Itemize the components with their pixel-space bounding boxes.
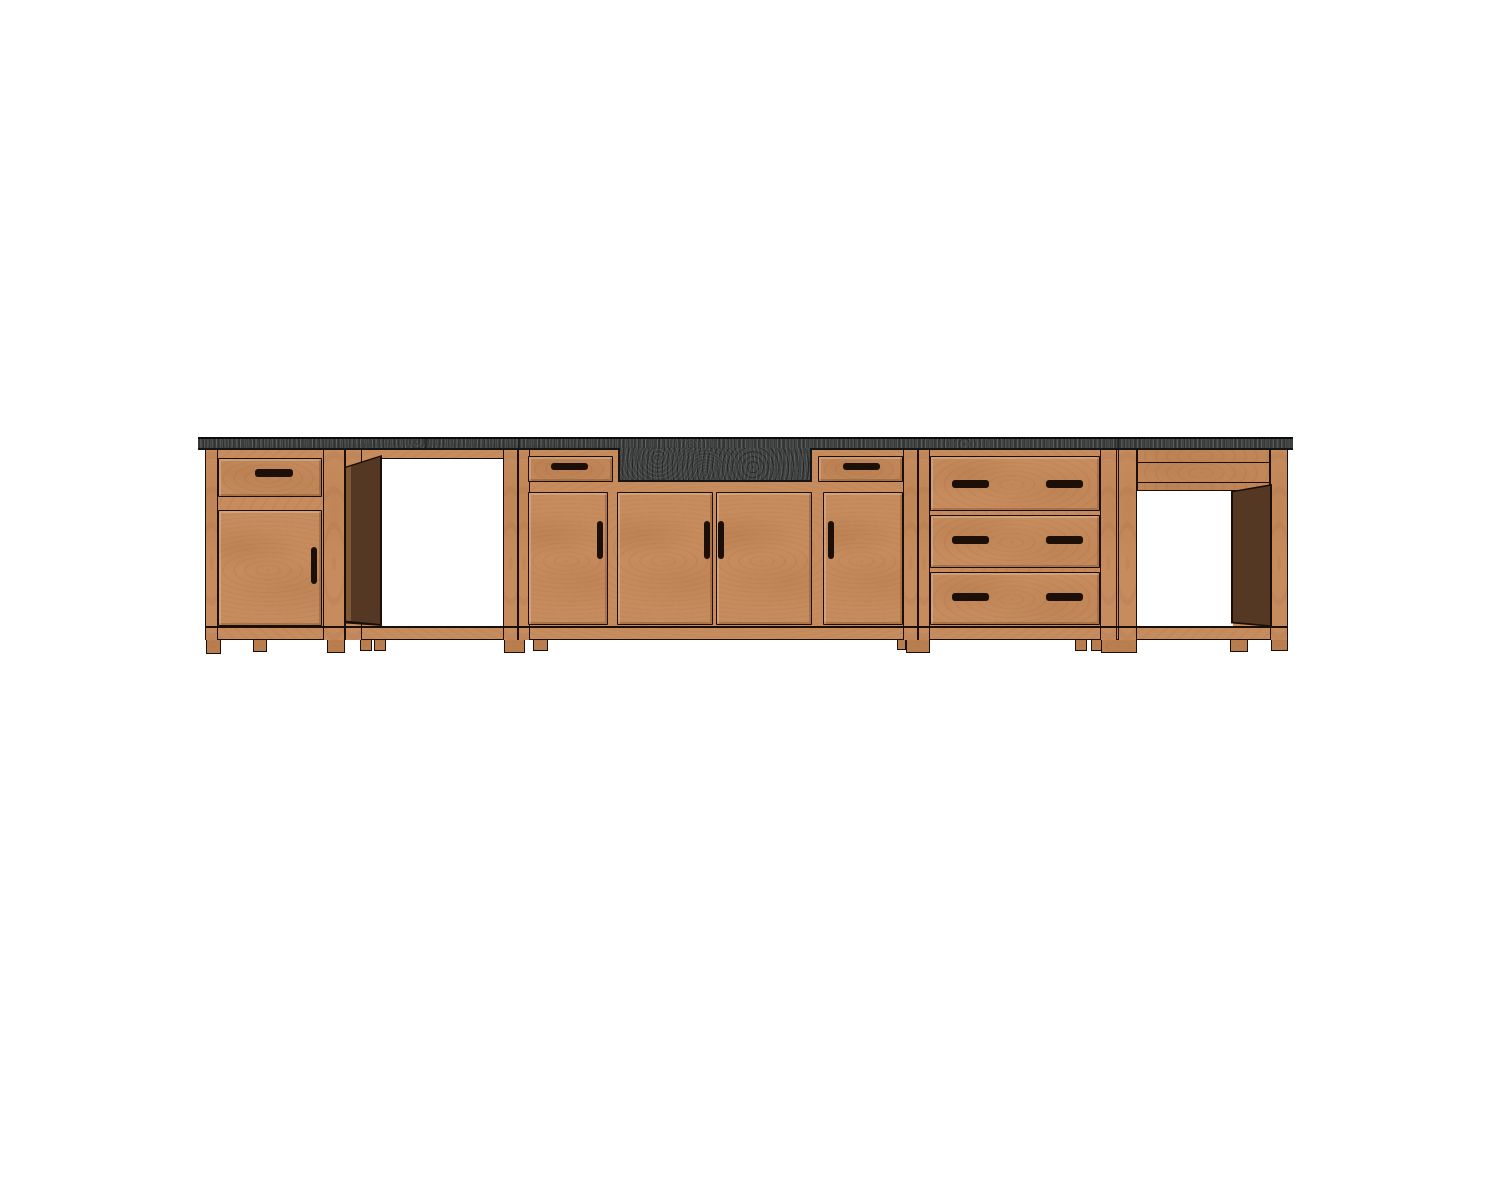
- unit4-drawer2-handle-left: [952, 536, 989, 544]
- stile-unit1-right: [323, 449, 345, 640]
- unit3-drawer-left-handle: [551, 463, 588, 470]
- unit4-drawer1-handle-right: [1046, 480, 1083, 488]
- farmhouse-sink-apron: [618, 448, 812, 482]
- unit5-appliance-opening: [1137, 490, 1233, 627]
- unit4-drawer3-handle-right: [1046, 593, 1083, 601]
- unit5-top-rail: [1137, 449, 1270, 463]
- unit2-foot-a: [360, 640, 372, 651]
- unit5-foot: [1230, 640, 1248, 652]
- unit3-door-left: [528, 492, 608, 625]
- unit4-foot-a: [1075, 640, 1087, 651]
- unit3-drawer-right-handle: [843, 463, 880, 470]
- unit1-door-handle: [311, 547, 317, 584]
- stile-unit4-left: [918, 449, 930, 640]
- unit1-door: [218, 510, 322, 626]
- unit5-interior-side-panel: [1233, 486, 1270, 626]
- unit1-left-leg: [206, 640, 221, 654]
- unit3-door-center-right-handle: [718, 521, 724, 559]
- stile-unit5-right: [1270, 449, 1288, 640]
- unit4-right-leg: [1101, 640, 1137, 653]
- unit1-center-foot: [253, 640, 267, 652]
- unit3-door-right-handle: [828, 521, 834, 559]
- unit5-second-rail: [1137, 462, 1270, 483]
- bottom-rail-top-edge: [205, 626, 1288, 628]
- unit1-right-leg: [327, 640, 345, 653]
- unit2-foot-b: [374, 640, 386, 651]
- unit3-right-foot: [897, 640, 906, 650]
- stile-unit3-right: [903, 449, 918, 640]
- unit2-open-door: [346, 457, 380, 624]
- unit4-drawer2-handle-right: [1046, 536, 1083, 544]
- countertop-seam-2: [518, 439, 520, 448]
- unit3-door-center-right: [716, 492, 812, 625]
- unit3-door-center-left-handle: [704, 521, 710, 559]
- stile-unit5-left: [1118, 449, 1137, 640]
- stile-unit1-left: [205, 449, 218, 640]
- unit2-appliance-opening: [381, 458, 503, 627]
- countertop-seam-3: [1117, 439, 1119, 448]
- unit3-door-right: [823, 492, 903, 625]
- countertop-seam-1: [425, 439, 427, 448]
- unit3-right-leg: [906, 640, 930, 653]
- cabinet-elevation-stage: [0, 0, 1500, 1200]
- unit2-right-leg: [504, 640, 525, 653]
- unit3-door-left-handle: [597, 521, 603, 559]
- unit4-drawer3-handle-left: [952, 593, 989, 601]
- unit3-door-center-left: [617, 492, 713, 625]
- unit1-drawer-handle: [255, 469, 293, 477]
- post-unit2-right: [503, 449, 518, 640]
- stile-unit4-right: [1100, 449, 1117, 640]
- unit4-drawer1-handle-left: [952, 480, 989, 488]
- unit5-right-leg: [1271, 640, 1288, 651]
- unit1-drawer-front: [218, 458, 322, 497]
- unit3-left-foot: [533, 640, 548, 651]
